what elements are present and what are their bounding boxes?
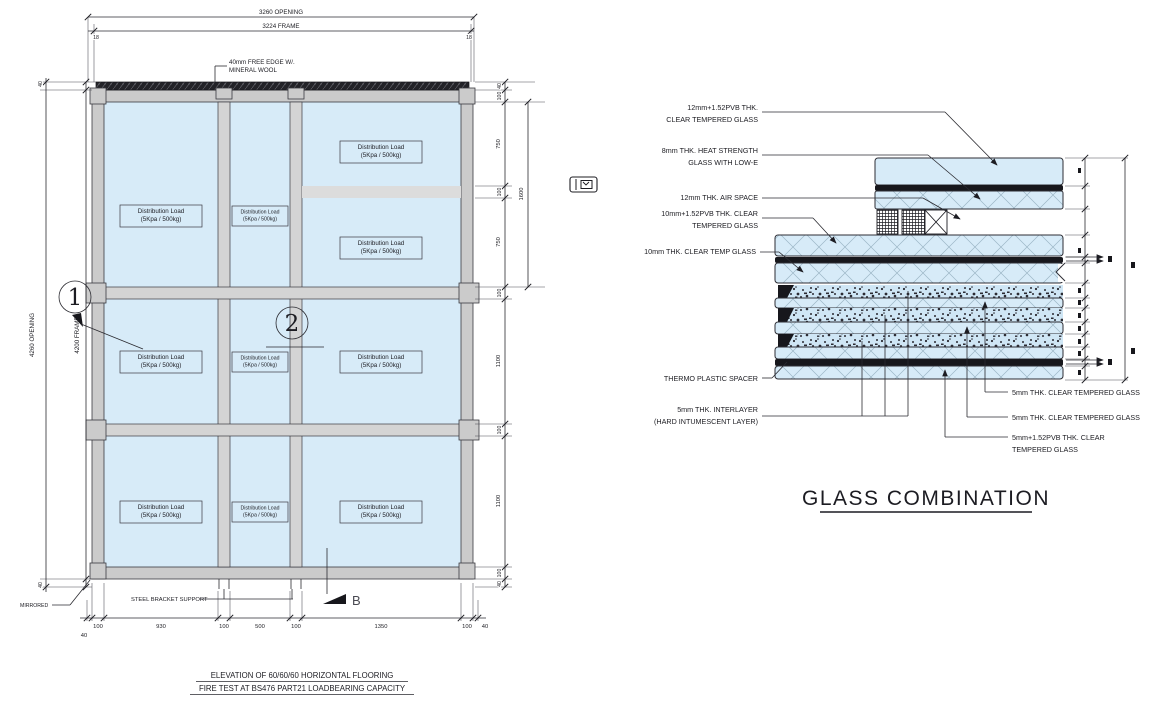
pane-5mm-pvb: [775, 366, 1063, 379]
svg-text:100: 100: [497, 188, 503, 197]
svg-text:40: 40: [497, 83, 503, 89]
svg-text:MIRRORED: MIRRORED: [20, 603, 48, 609]
svg-text:100: 100: [219, 624, 229, 630]
pane-10mm-clear: [775, 263, 1063, 283]
dim-frame-top: 3224 FRAME: [262, 23, 299, 30]
detail-dims: [1065, 155, 1135, 383]
svg-text:40: 40: [38, 81, 44, 87]
pane-8mm-lowe: [875, 191, 1063, 209]
svg-text:100: 100: [291, 624, 301, 630]
svg-text:5mm THK. CLEAR TEMPERED GLASS: 5mm THK. CLEAR TEMPERED GLASS: [1012, 388, 1140, 397]
svg-text:18: 18: [93, 35, 99, 41]
svg-text:(5Kpa / 500kg): (5Kpa / 500kg): [141, 512, 182, 519]
svg-text:10mm+1.52PVB THK. CLEAR: 10mm+1.52PVB THK. CLEAR: [661, 209, 758, 218]
svg-text:(5Kpa / 500kg): (5Kpa / 500kg): [361, 248, 402, 255]
section-marker-icon: [570, 177, 597, 192]
svg-text:12mm+1.52PVB THK.: 12mm+1.52PVB THK.: [687, 103, 758, 112]
elevation-figure: Distribution Load (5Kpa / 500kg) Distrib…: [20, 9, 597, 695]
svg-text:100: 100: [462, 624, 472, 630]
svg-text:930: 930: [156, 624, 166, 630]
svg-text:100: 100: [497, 569, 503, 578]
svg-text:THERMO PLASTIC SPACER: THERMO PLASTIC SPACER: [664, 374, 758, 383]
load-label-line1: Distribution Load: [138, 208, 185, 215]
svg-text:100: 100: [497, 92, 503, 101]
svg-text:12mm THK. AIR SPACE: 12mm THK. AIR SPACE: [680, 193, 758, 202]
load-label-line2: (5Kpa / 500kg): [141, 216, 182, 223]
svg-text:STEEL BRACKET SUPPORT: STEEL BRACKET SUPPORT: [131, 597, 208, 603]
pvb-interlayer-mid: [775, 257, 1063, 263]
dim-top: 3260 OPENING 3224 FRAME 18 18: [85, 9, 477, 82]
dim-right: 40 100 750 100 750 1600 100 1100 100 110…: [475, 79, 545, 590]
svg-text:TEMPERED GLASS: TEMPERED GLASS: [692, 221, 758, 230]
svg-text:TEMPERED GLASS: TEMPERED GLASS: [1012, 445, 1078, 454]
intumescent-interlayer-3: [778, 334, 1063, 347]
svg-text:Distribution Load: Distribution Load: [241, 506, 280, 512]
pane-5mm-a: [775, 298, 1063, 308]
svg-text:(5Kpa / 500kg): (5Kpa / 500kg): [361, 512, 402, 519]
dim-opening-top: 3260 OPENING: [259, 9, 303, 16]
svg-text:8mm THK. HEAT STRENGTH: 8mm THK. HEAT STRENGTH: [662, 146, 758, 155]
svg-text:(5Kpa / 500kg): (5Kpa / 500kg): [141, 362, 182, 369]
svg-text:1100: 1100: [496, 495, 502, 507]
glass-stack: [775, 158, 1066, 379]
pane-10mm-pvb: [775, 235, 1063, 256]
pvb-interlayer-bottom: [775, 359, 1063, 366]
svg-text:Distribution Load: Distribution Load: [358, 144, 405, 151]
svg-text:(HARD INTUMESCENT LAYER): (HARD INTUMESCENT LAYER): [654, 417, 758, 426]
svg-text:MINERAL WOOL: MINERAL WOOL: [229, 67, 277, 74]
mirrored-note: MIRRORED: [20, 580, 90, 609]
svg-text:500: 500: [255, 624, 265, 630]
svg-text:750: 750: [496, 237, 502, 247]
svg-text:100: 100: [497, 426, 503, 435]
dim-bottom: 40 100 930 100 500 100 1350 100 40: [80, 583, 488, 639]
svg-text:(5Kpa / 500kg): (5Kpa / 500kg): [361, 152, 402, 159]
dim-opening-left: 4260 OPENING: [29, 313, 36, 357]
svg-text:100: 100: [497, 289, 503, 298]
svg-text:5mm THK. CLEAR TEMPERED GLASS: 5mm THK. CLEAR TEMPERED GLASS: [1012, 413, 1140, 422]
svg-text:Distribution Load: Distribution Load: [241, 356, 280, 362]
svg-text:5mm THK. INTERLAYER: 5mm THK. INTERLAYER: [677, 405, 758, 414]
intumescent-interlayer-2: [778, 308, 1063, 322]
svg-text:1600: 1600: [519, 188, 525, 201]
svg-text:40: 40: [482, 624, 488, 630]
dim-left: 4260 OPENING 4200 FRAME 40 40: [29, 78, 96, 592]
steel-bracket-note: STEEL BRACKET SUPPORT: [131, 589, 293, 603]
svg-text:40mm FREE EDGE W/.: 40mm FREE EDGE W/.: [229, 59, 295, 66]
thermo-plastic-spacer-block: [877, 210, 947, 234]
svg-text:18: 18: [466, 35, 472, 41]
svg-text:Distribution Load: Distribution Load: [241, 210, 280, 216]
mullion-1: [218, 102, 230, 567]
svg-text:40: 40: [38, 582, 44, 588]
svg-text:CLEAR TEMPERED GLASS: CLEAR TEMPERED GLASS: [666, 115, 758, 124]
svg-text:Distribution Load: Distribution Load: [138, 354, 185, 361]
pane-12mm: [875, 158, 1063, 185]
split-band: [302, 186, 461, 198]
svg-text:(5Kpa / 500kg): (5Kpa / 500kg): [243, 363, 277, 369]
svg-text:10mm THK. CLEAR TEMP GLASS: 10mm THK. CLEAR TEMP GLASS: [644, 247, 756, 256]
svg-text:1350: 1350: [375, 624, 388, 630]
svg-text:GLASS COMBINATION: GLASS COMBINATION: [802, 487, 1050, 510]
svg-text:Distribution Load: Distribution Load: [358, 354, 405, 361]
svg-text:40: 40: [497, 581, 503, 587]
beam-2: [104, 424, 461, 436]
svg-text:Distribution Load: Distribution Load: [358, 240, 405, 247]
beam-1: [104, 287, 461, 299]
svg-text:40: 40: [81, 633, 87, 639]
svg-text:(5Kpa / 500kg): (5Kpa / 500kg): [243, 217, 277, 223]
tiny-dim-marks: [1078, 168, 1135, 375]
svg-text:(5Kpa / 500kg): (5Kpa / 500kg): [243, 513, 277, 519]
elevation-title-line2: FIRE TEST AT BS476 PART21 LOADBEARING CA…: [199, 684, 406, 693]
mineral-wool-strip: [96, 82, 469, 90]
elevation-title: ELEVATION OF 60/60/60 HORIZONTAL FLOORIN…: [190, 671, 414, 695]
svg-text:5mm+1.52PVB THK. CLEAR: 5mm+1.52PVB THK. CLEAR: [1012, 433, 1105, 442]
drawing-canvas: Distribution Load (5Kpa / 500kg) Distrib…: [0, 0, 1150, 709]
svg-text:(5Kpa / 500kg): (5Kpa / 500kg): [361, 362, 402, 369]
pane-5mm-c: [775, 347, 1063, 359]
svg-text:1100: 1100: [496, 355, 502, 367]
svg-text:100: 100: [93, 624, 103, 630]
pane-5mm-b: [775, 322, 1063, 334]
cad-drawing-sheet: Distribution Load (5Kpa / 500kg) Distrib…: [0, 0, 1150, 709]
svg-text:GLASS WITH LOW-E: GLASS WITH LOW-E: [688, 158, 758, 167]
free-edge-note: 40mm FREE EDGE W/. MINERAL WOOL: [215, 59, 295, 82]
svg-text:B: B: [352, 593, 361, 608]
glass-combination-figure: 12mm+1.52PVB THK. CLEAR TEMPERED GLASS 8…: [644, 103, 1140, 512]
elevation-title-line1: ELEVATION OF 60/60/60 HORIZONTAL FLOORIN…: [211, 671, 394, 680]
svg-text:2: 2: [285, 311, 300, 337]
svg-text:Distribution Load: Distribution Load: [138, 504, 185, 511]
svg-text:1: 1: [68, 285, 83, 311]
intumescent-interlayer-1: [778, 285, 1063, 298]
svg-text:Distribution Load: Distribution Load: [358, 504, 405, 511]
glass-field: [104, 102, 461, 567]
glass-combination-title: GLASS COMBINATION: [802, 487, 1050, 512]
svg-text:750: 750: [496, 139, 502, 149]
